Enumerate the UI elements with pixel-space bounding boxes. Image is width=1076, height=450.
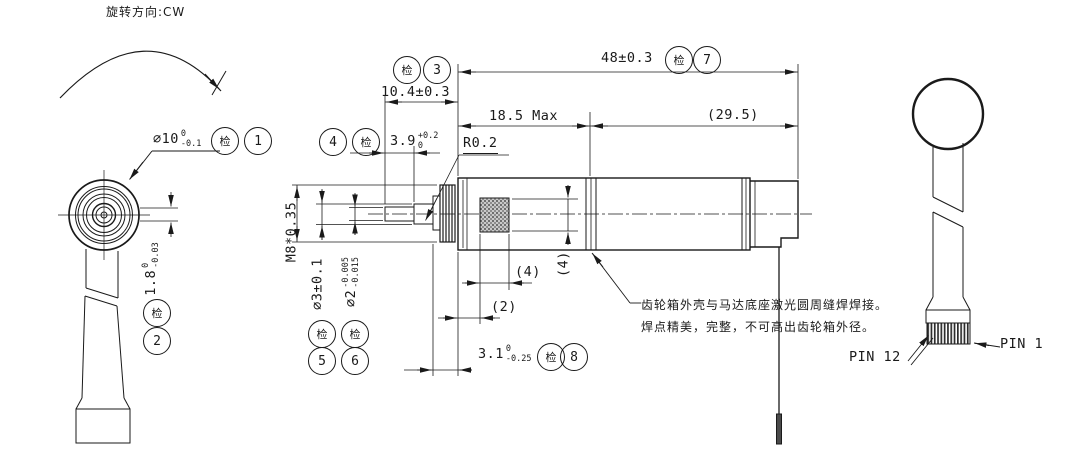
balloon-4: 4 — [319, 128, 347, 156]
weld-leader — [592, 253, 641, 303]
inspection-badge-4: 检 — [352, 128, 380, 156]
dim-dia10-value: ∅10 — [153, 133, 179, 147]
fpc-disc — [913, 79, 983, 149]
balloon-3: 3 — [423, 56, 451, 84]
dim-thread: M8*0.35 — [285, 202, 299, 262]
dim-len48: 48±0.3 — [601, 52, 653, 66]
dim-dia10-tolerance: 0 -0.1 — [181, 130, 201, 150]
pin1-label: PIN 1 — [1000, 338, 1043, 352]
dim-len185: 18.5 Max — [489, 110, 558, 124]
dim-len39: 3.9 +0.2 0 — [390, 132, 438, 152]
dim-dia10: ∅10 0 -0.1 — [153, 130, 201, 150]
thread-section — [440, 185, 455, 242]
rotation-direction-note: 旋转方向:CW — [106, 6, 185, 18]
inspection-badge-3: 检 — [393, 56, 421, 84]
dim-flat18: 1.8 0 -0.03 — [142, 242, 162, 295]
dim-radius: R0.2 — [463, 137, 498, 154]
dia10-leader — [130, 151, 221, 180]
dim-dia2: ∅2 -0.005 -0.015 — [342, 257, 362, 307]
engineering-drawing: 旋转方向:CW ∅10 0 -0.1 1.8 0 -0.03 10.4±0.3 … — [0, 0, 1076, 450]
pin12-label: PIN 12 — [849, 351, 901, 365]
balloon-6: 6 — [341, 347, 369, 375]
weld-note-line2: 焊点精美，完整，不可高出齿轮箱外径。 — [641, 321, 875, 333]
weld-note-line1: 齿轮箱外壳与马达底座激光圆周缝焊焊接。 — [641, 299, 888, 311]
laser-marked-label — [480, 198, 509, 232]
dim-offset2: (2) — [491, 301, 517, 315]
balloon-5: 5 — [308, 347, 336, 375]
balloon-8: 8 — [560, 343, 588, 371]
inspection-badge-7: 检 — [665, 46, 693, 74]
dim-len104: 10.4±0.3 — [381, 86, 450, 100]
balloon-7: 7 — [693, 46, 721, 74]
flat18-dim — [140, 192, 178, 237]
connector-pins — [927, 323, 970, 344]
inspection-badge-5: 检 — [308, 320, 336, 348]
dim-qr-height: (4) — [557, 251, 571, 277]
inspection-badge-6: 检 — [341, 320, 369, 348]
dim-len295: (29.5) — [707, 109, 759, 123]
inspection-badge-1: 检 — [211, 127, 239, 155]
dim-len31: 3.1 0 -0.25 — [478, 345, 531, 365]
balloon-1: 1 — [244, 127, 272, 155]
dim-dia3: ∅3±0.1 — [311, 258, 325, 310]
balloon-2: 2 — [143, 327, 171, 355]
dim-qr-width: (4) — [515, 266, 541, 280]
inspection-badge-2: 检 — [143, 299, 171, 327]
lead-wire — [777, 247, 782, 444]
end-view — [58, 151, 220, 443]
fpc-view — [908, 79, 1000, 365]
drawing-linework — [0, 0, 1076, 450]
end-view-cable — [76, 249, 130, 443]
rotation-arrow — [60, 51, 226, 98]
